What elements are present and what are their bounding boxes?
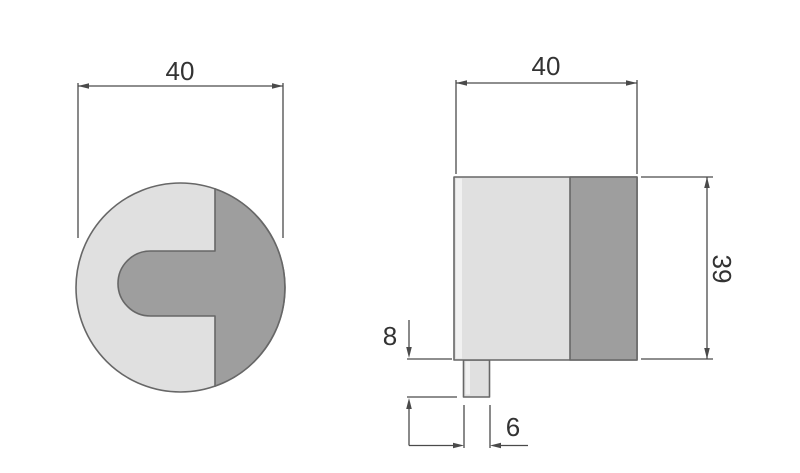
drawing-svg: 40 40 39 8: [0, 0, 800, 473]
dim-tab-protrusion-arrow-up: [406, 398, 412, 409]
dim-tab-width-label: 6: [506, 412, 520, 442]
dimension-side-width: 40: [456, 51, 637, 174]
dim-side-width-arrow-right: [626, 80, 637, 86]
dim-side-width-arrow-left: [456, 80, 467, 86]
technical-drawing-page: 40 40 39 8: [0, 0, 800, 473]
front-view: [76, 183, 285, 392]
dim-front-width-arrow-right: [272, 83, 283, 89]
dim-front-width-arrow-left: [78, 83, 89, 89]
side-view-dark-section: [570, 177, 637, 360]
dimension-side-height: 39: [641, 177, 737, 359]
dim-front-width-label: 40: [166, 56, 195, 86]
dim-side-height-arrow-bottom: [704, 348, 710, 359]
dim-side-width-label: 40: [532, 51, 561, 81]
dimension-tab-width: 6: [409, 405, 528, 448]
dim-tab-width-arrow-left: [490, 443, 501, 449]
side-view-body-highlight: [456, 179, 462, 359]
dim-side-height-arrow-top: [704, 177, 710, 188]
dim-tab-width-arrow-right: [453, 443, 464, 449]
dim-tab-protrusion-arrow-down: [406, 347, 412, 358]
side-view-tab-highlight: [466, 362, 471, 395]
side-view: [454, 177, 637, 397]
dim-side-height-label: 39: [707, 255, 737, 284]
dimension-tab-protrusion: 8: [383, 320, 457, 446]
dim-tab-protrusion-label: 8: [383, 321, 397, 351]
